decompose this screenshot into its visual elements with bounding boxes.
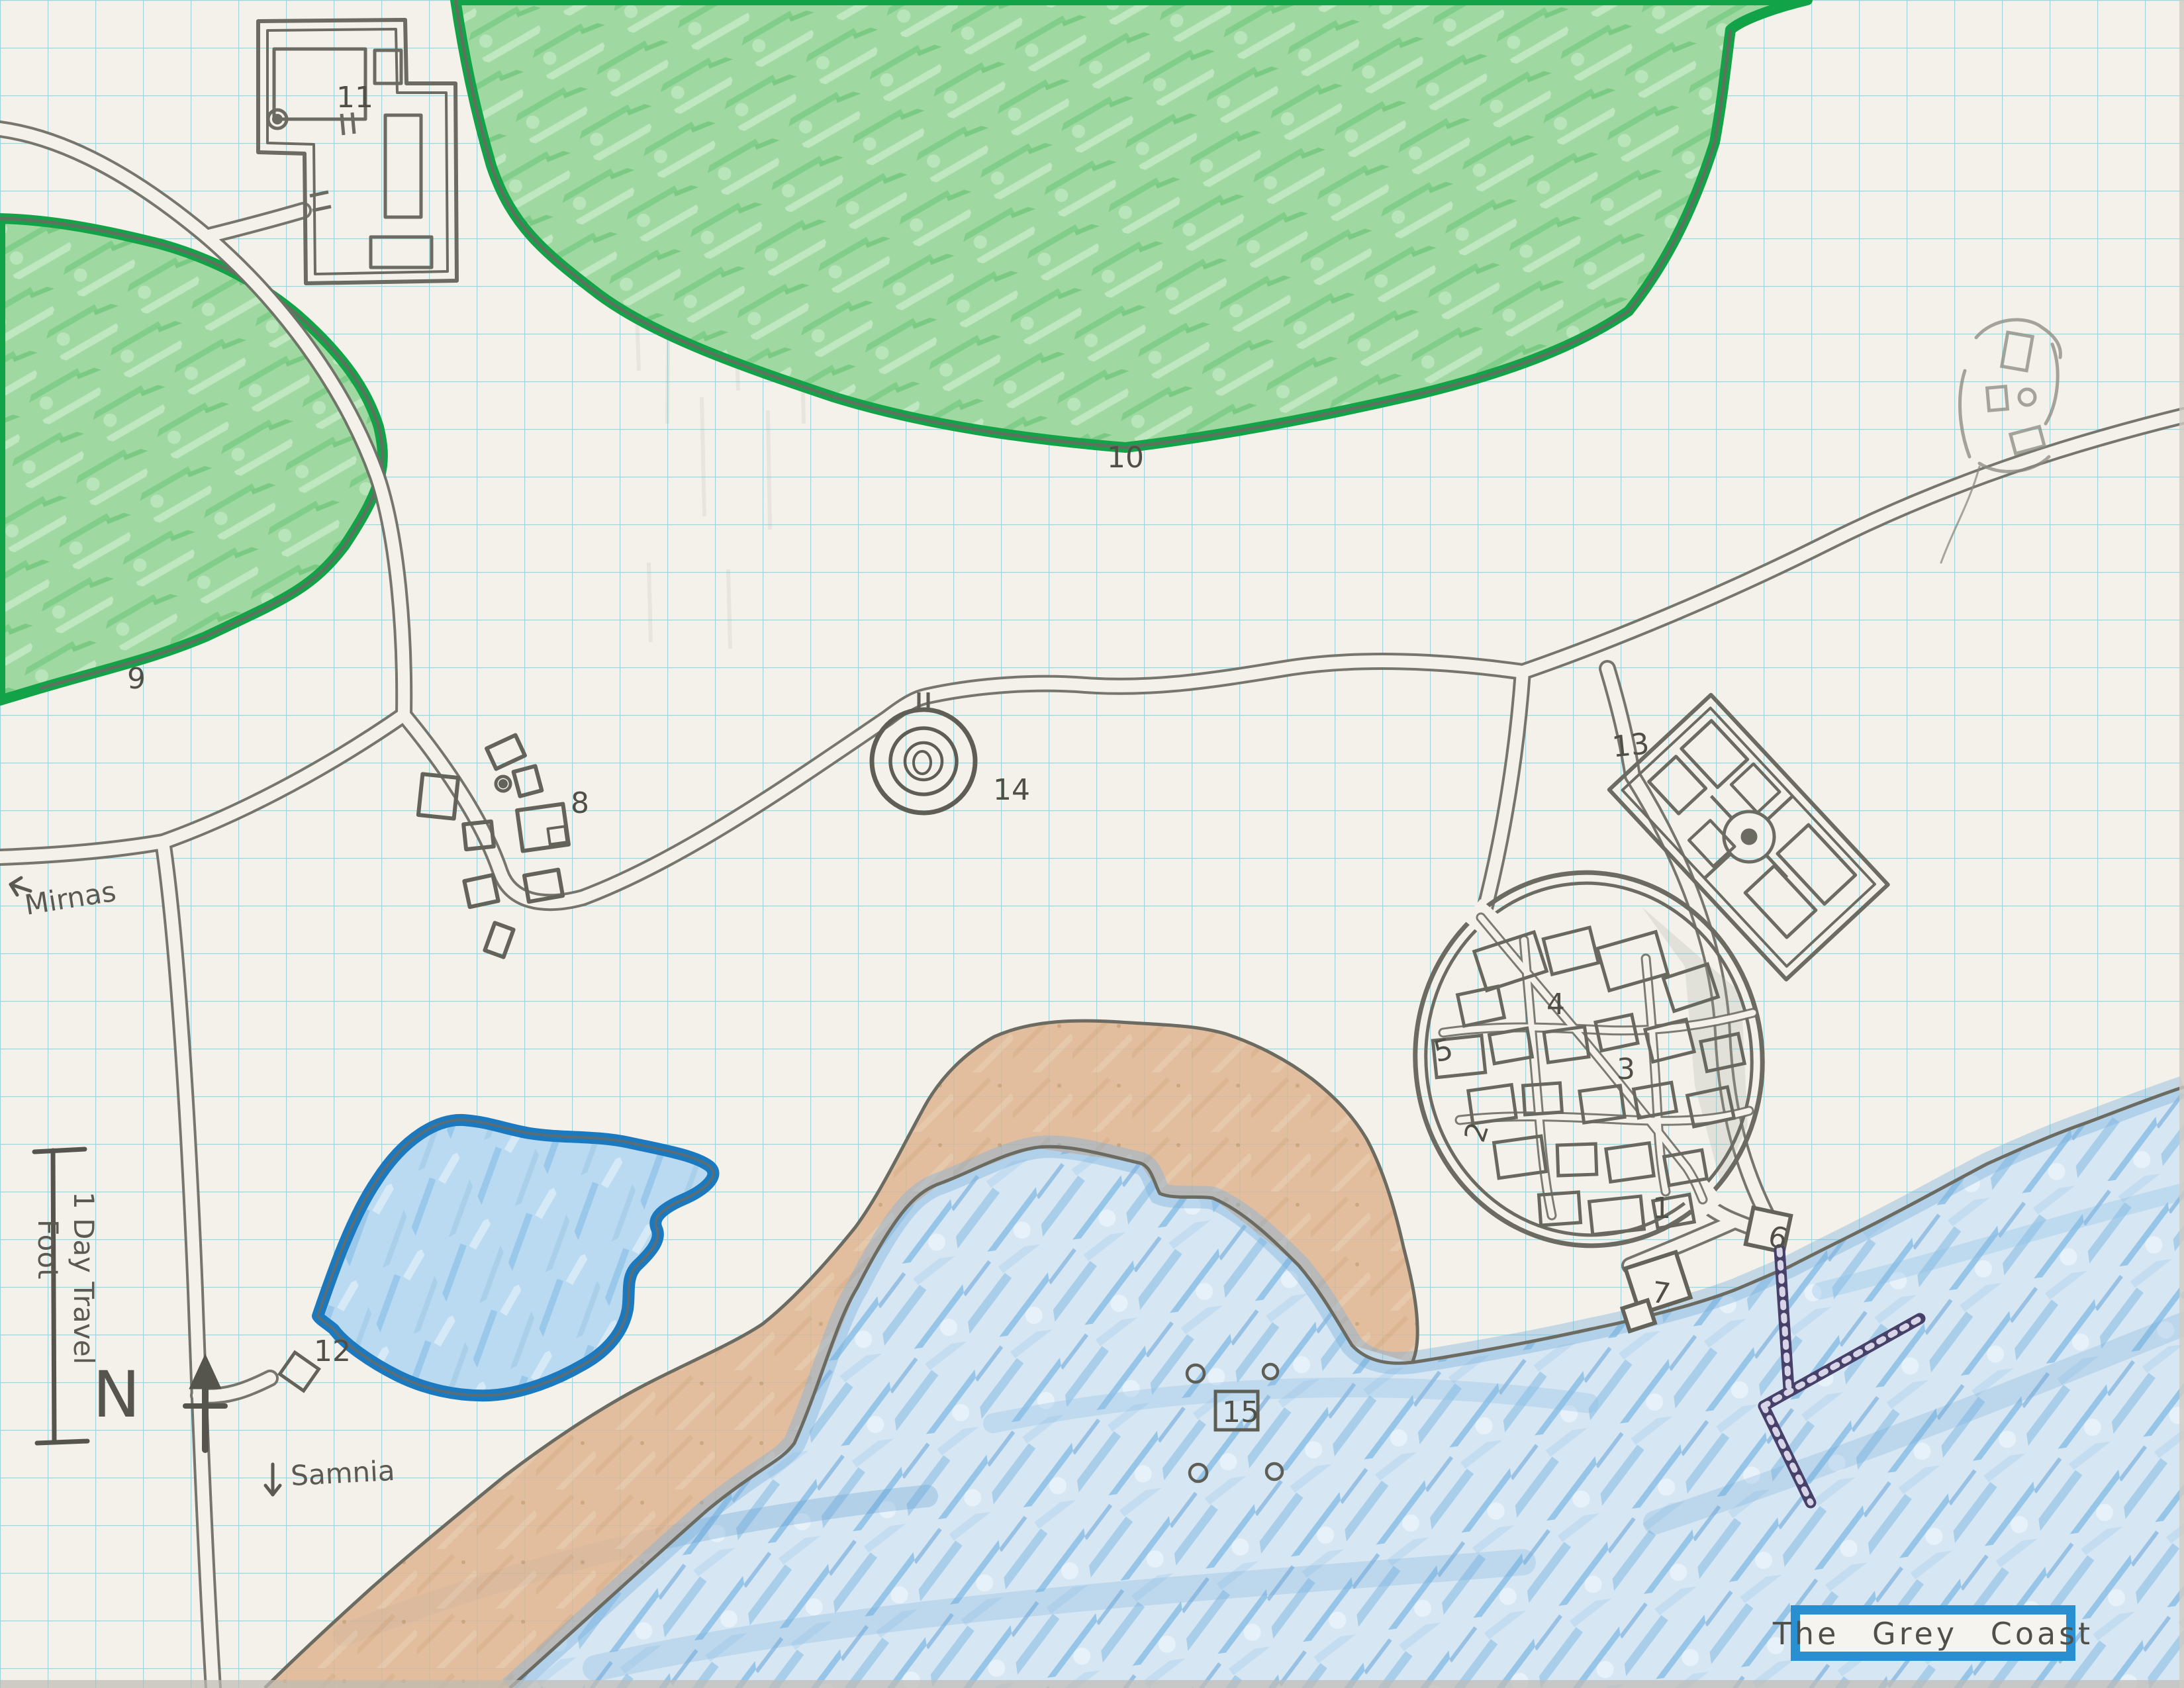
grey-coast-map: 1 Day Travel Foot N Mirnas Samnia 1 2 3 … (0, 0, 2184, 1688)
scale-bar-unit: Foot (32, 1219, 64, 1280)
map-marker-15: 15 (1222, 1395, 1259, 1429)
map-marker-13: 13 (1611, 727, 1651, 765)
map-marker-1: 1 (1652, 1192, 1671, 1225)
map-marker-11: 11 (336, 81, 373, 115)
map-marker-14: 14 (993, 773, 1030, 807)
map-marker-4: 4 (1546, 988, 1565, 1021)
map-marker-8: 8 (571, 786, 589, 820)
map-marker-9: 9 (127, 662, 146, 696)
map-marker-12: 12 (314, 1335, 351, 1368)
map-title: The Grey Coast (1772, 1616, 2093, 1652)
map-marker-10: 10 (1107, 441, 1144, 475)
scanned-map-page: 1 Day Travel Foot N Mirnas Samnia 1 2 3 … (0, 0, 2184, 1688)
compass-north-label: N (93, 1358, 140, 1432)
scan-edge-right (2179, 0, 2184, 1688)
title-box: The Grey Coast (1772, 1610, 2093, 1656)
offmap-label-samnia: Samnia (290, 1454, 396, 1492)
scan-edge-bottom (0, 1680, 2184, 1688)
map-marker-3: 3 (1617, 1053, 1635, 1086)
scale-bar-label: 1 Day Travel (68, 1192, 100, 1364)
